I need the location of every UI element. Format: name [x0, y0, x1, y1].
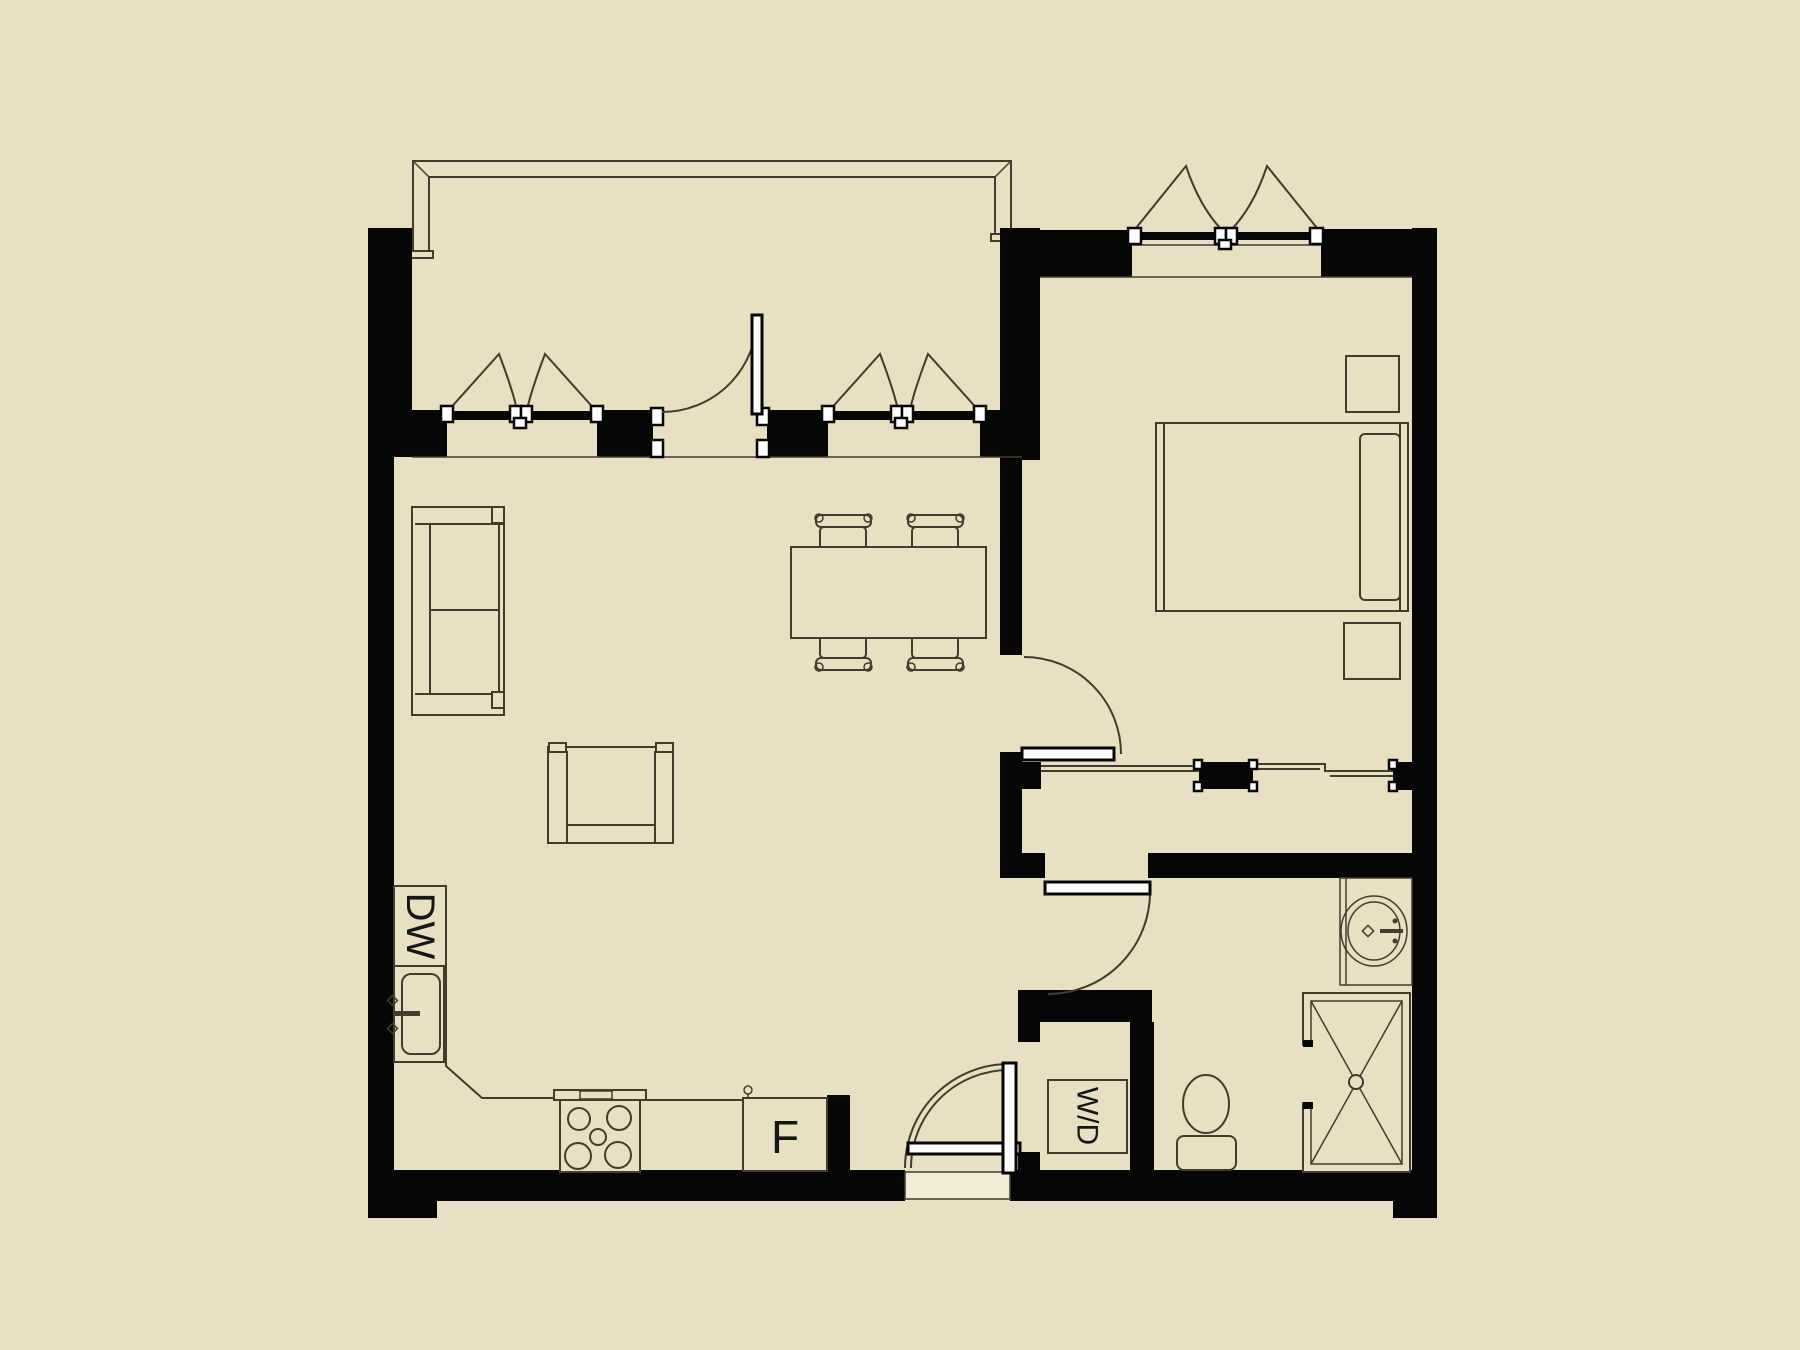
wd-closet-right-wall [1130, 1022, 1154, 1170]
window-hinge-icon [895, 418, 907, 428]
window-pier-2 [597, 410, 653, 457]
dishwasher: DW [394, 886, 446, 966]
stove [554, 1090, 646, 1172]
window-hinge-icon [822, 406, 834, 422]
window-pier-3 [767, 410, 828, 457]
fridge-label: F [771, 1111, 799, 1163]
window-hinge-icon [514, 418, 526, 428]
bathroom-top-wall [1148, 853, 1412, 878]
wd-closet-top-wall [1018, 990, 1152, 1022]
window-hinge-icon [441, 406, 453, 422]
balcony-door-leaf [752, 315, 762, 414]
entry-threshold [905, 1172, 1010, 1199]
living-bedroom-wall-lower [1000, 752, 1022, 878]
entry-door-leaf [1003, 1063, 1016, 1173]
armchair [548, 743, 673, 843]
kitchen-end-wall-stub [827, 1095, 850, 1170]
left-wall [368, 457, 394, 1201]
washer-dryer: W/D [1048, 1080, 1127, 1153]
kitchen-sink [388, 966, 444, 1062]
right-wall-foot [1393, 1201, 1437, 1218]
toilet-tank [1177, 1136, 1236, 1170]
canvas-background [0, 0, 1800, 1350]
bedroom-window-pier-left [1040, 230, 1132, 277]
sofa [412, 507, 504, 715]
floor-plan-page: DW F [0, 0, 1800, 1350]
wd-closet-left-wall-upper [1018, 1022, 1040, 1042]
bathroom-door-leaf [1045, 882, 1150, 894]
faucet-icon [394, 1011, 420, 1016]
window-hinge-icon [1219, 240, 1231, 249]
bed [1156, 423, 1408, 611]
bedroom-left-wall-column [1000, 228, 1040, 460]
bedroom-door-leaf [1022, 748, 1114, 760]
pillow [1360, 434, 1400, 600]
window-hinge-icon [1128, 228, 1141, 244]
washer-dryer-label: W/D [1071, 1087, 1104, 1145]
bathroom-wall-left-jamb [1022, 853, 1045, 878]
floor-plan-canvas: DW F [0, 0, 1800, 1350]
bottom-wall-left [368, 1170, 905, 1201]
window-hinge-icon [974, 406, 986, 422]
shower [1300, 993, 1410, 1172]
shower-door-opening [1300, 1046, 1312, 1102]
living-bedroom-wall-upper [1000, 460, 1022, 655]
shower-drain-icon [1349, 1075, 1363, 1089]
left-wall-top-column [368, 228, 412, 457]
nightstand-top [1346, 356, 1399, 412]
window-hinge-icon [1310, 228, 1323, 244]
nightstand-bottom [1344, 623, 1400, 679]
left-wall-foot [368, 1201, 437, 1218]
bottom-wall-right [1010, 1170, 1437, 1201]
window-hinge-icon [591, 406, 603, 422]
fridge: F [743, 1086, 827, 1171]
right-wall [1412, 228, 1437, 1201]
dining-table [791, 547, 986, 638]
dishwasher-label: DW [398, 893, 442, 960]
toilet-bowl [1183, 1075, 1229, 1133]
